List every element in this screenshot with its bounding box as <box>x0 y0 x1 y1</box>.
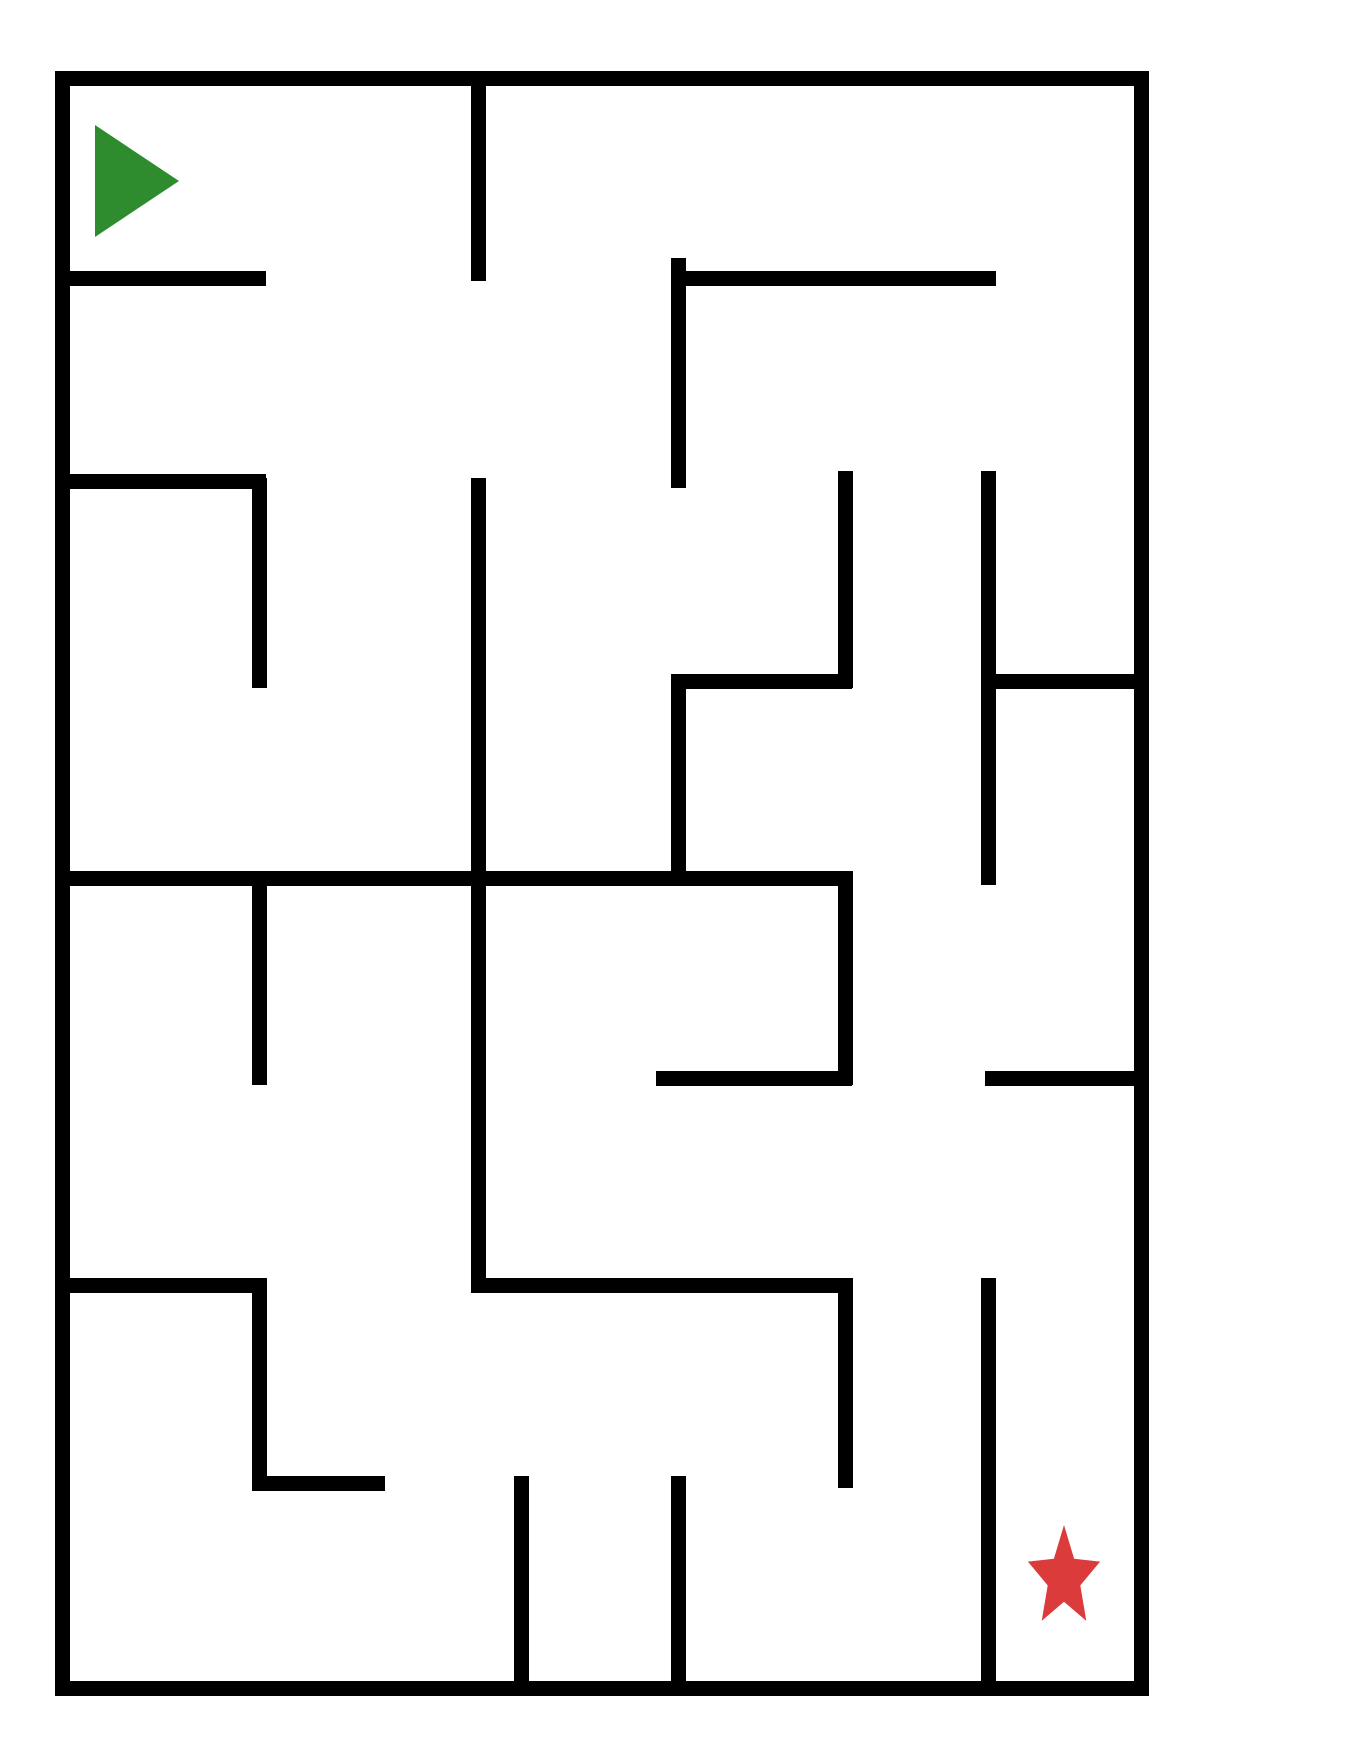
maze-wall-h-row6-mid <box>471 1278 852 1293</box>
goal-star-marker <box>1022 1521 1106 1635</box>
maze-wall-v-center-long <box>471 478 486 1292</box>
maze-wall-border-left <box>55 71 70 1696</box>
maze-wall-v-col5-c <box>838 1278 853 1488</box>
maze-page <box>0 0 1360 1760</box>
maze-wall-border-right <box>1134 71 1149 1696</box>
maze-wall-v-col4-a <box>671 258 686 488</box>
maze-wall-h-row5-right <box>985 1071 1148 1086</box>
maze-wall-v-col6-b <box>981 1278 996 1696</box>
maze-wall-h-row5-mid <box>656 1071 852 1086</box>
goal-star-shape <box>1028 1525 1100 1621</box>
maze-wall-v-left-b <box>252 871 267 1085</box>
maze-wall-v-col5-a <box>838 471 853 688</box>
maze-wall-v-col4-b <box>671 674 686 885</box>
maze-wall-border-top <box>55 71 1148 86</box>
start-triangle-shape <box>95 125 179 237</box>
maze-wall-v-col5-b <box>838 871 853 1085</box>
maze-wall-v-col6-a <box>981 471 996 885</box>
maze-wall-h-row1-left <box>62 271 266 286</box>
maze-wall-v-left-c <box>252 1278 267 1490</box>
maze-wall-v-top-middle <box>471 71 486 281</box>
maze-wall-h-row1-right <box>671 271 996 286</box>
maze-wall-h-row7-left <box>252 1476 385 1491</box>
maze-wall-h-row6-left <box>62 1278 266 1293</box>
maze-wall-h-row4-long <box>62 871 852 886</box>
maze-wall-h-row2-left <box>62 474 266 489</box>
maze-wall-h-row3-right <box>985 674 1148 689</box>
maze-wall-v-col4-c <box>671 1476 686 1696</box>
start-triangle-marker <box>95 125 179 237</box>
maze-wall-h-row3-mid <box>671 674 852 689</box>
maze-wall-v-bottom-mid <box>514 1476 529 1696</box>
maze-wall-v-left-a <box>252 478 267 688</box>
